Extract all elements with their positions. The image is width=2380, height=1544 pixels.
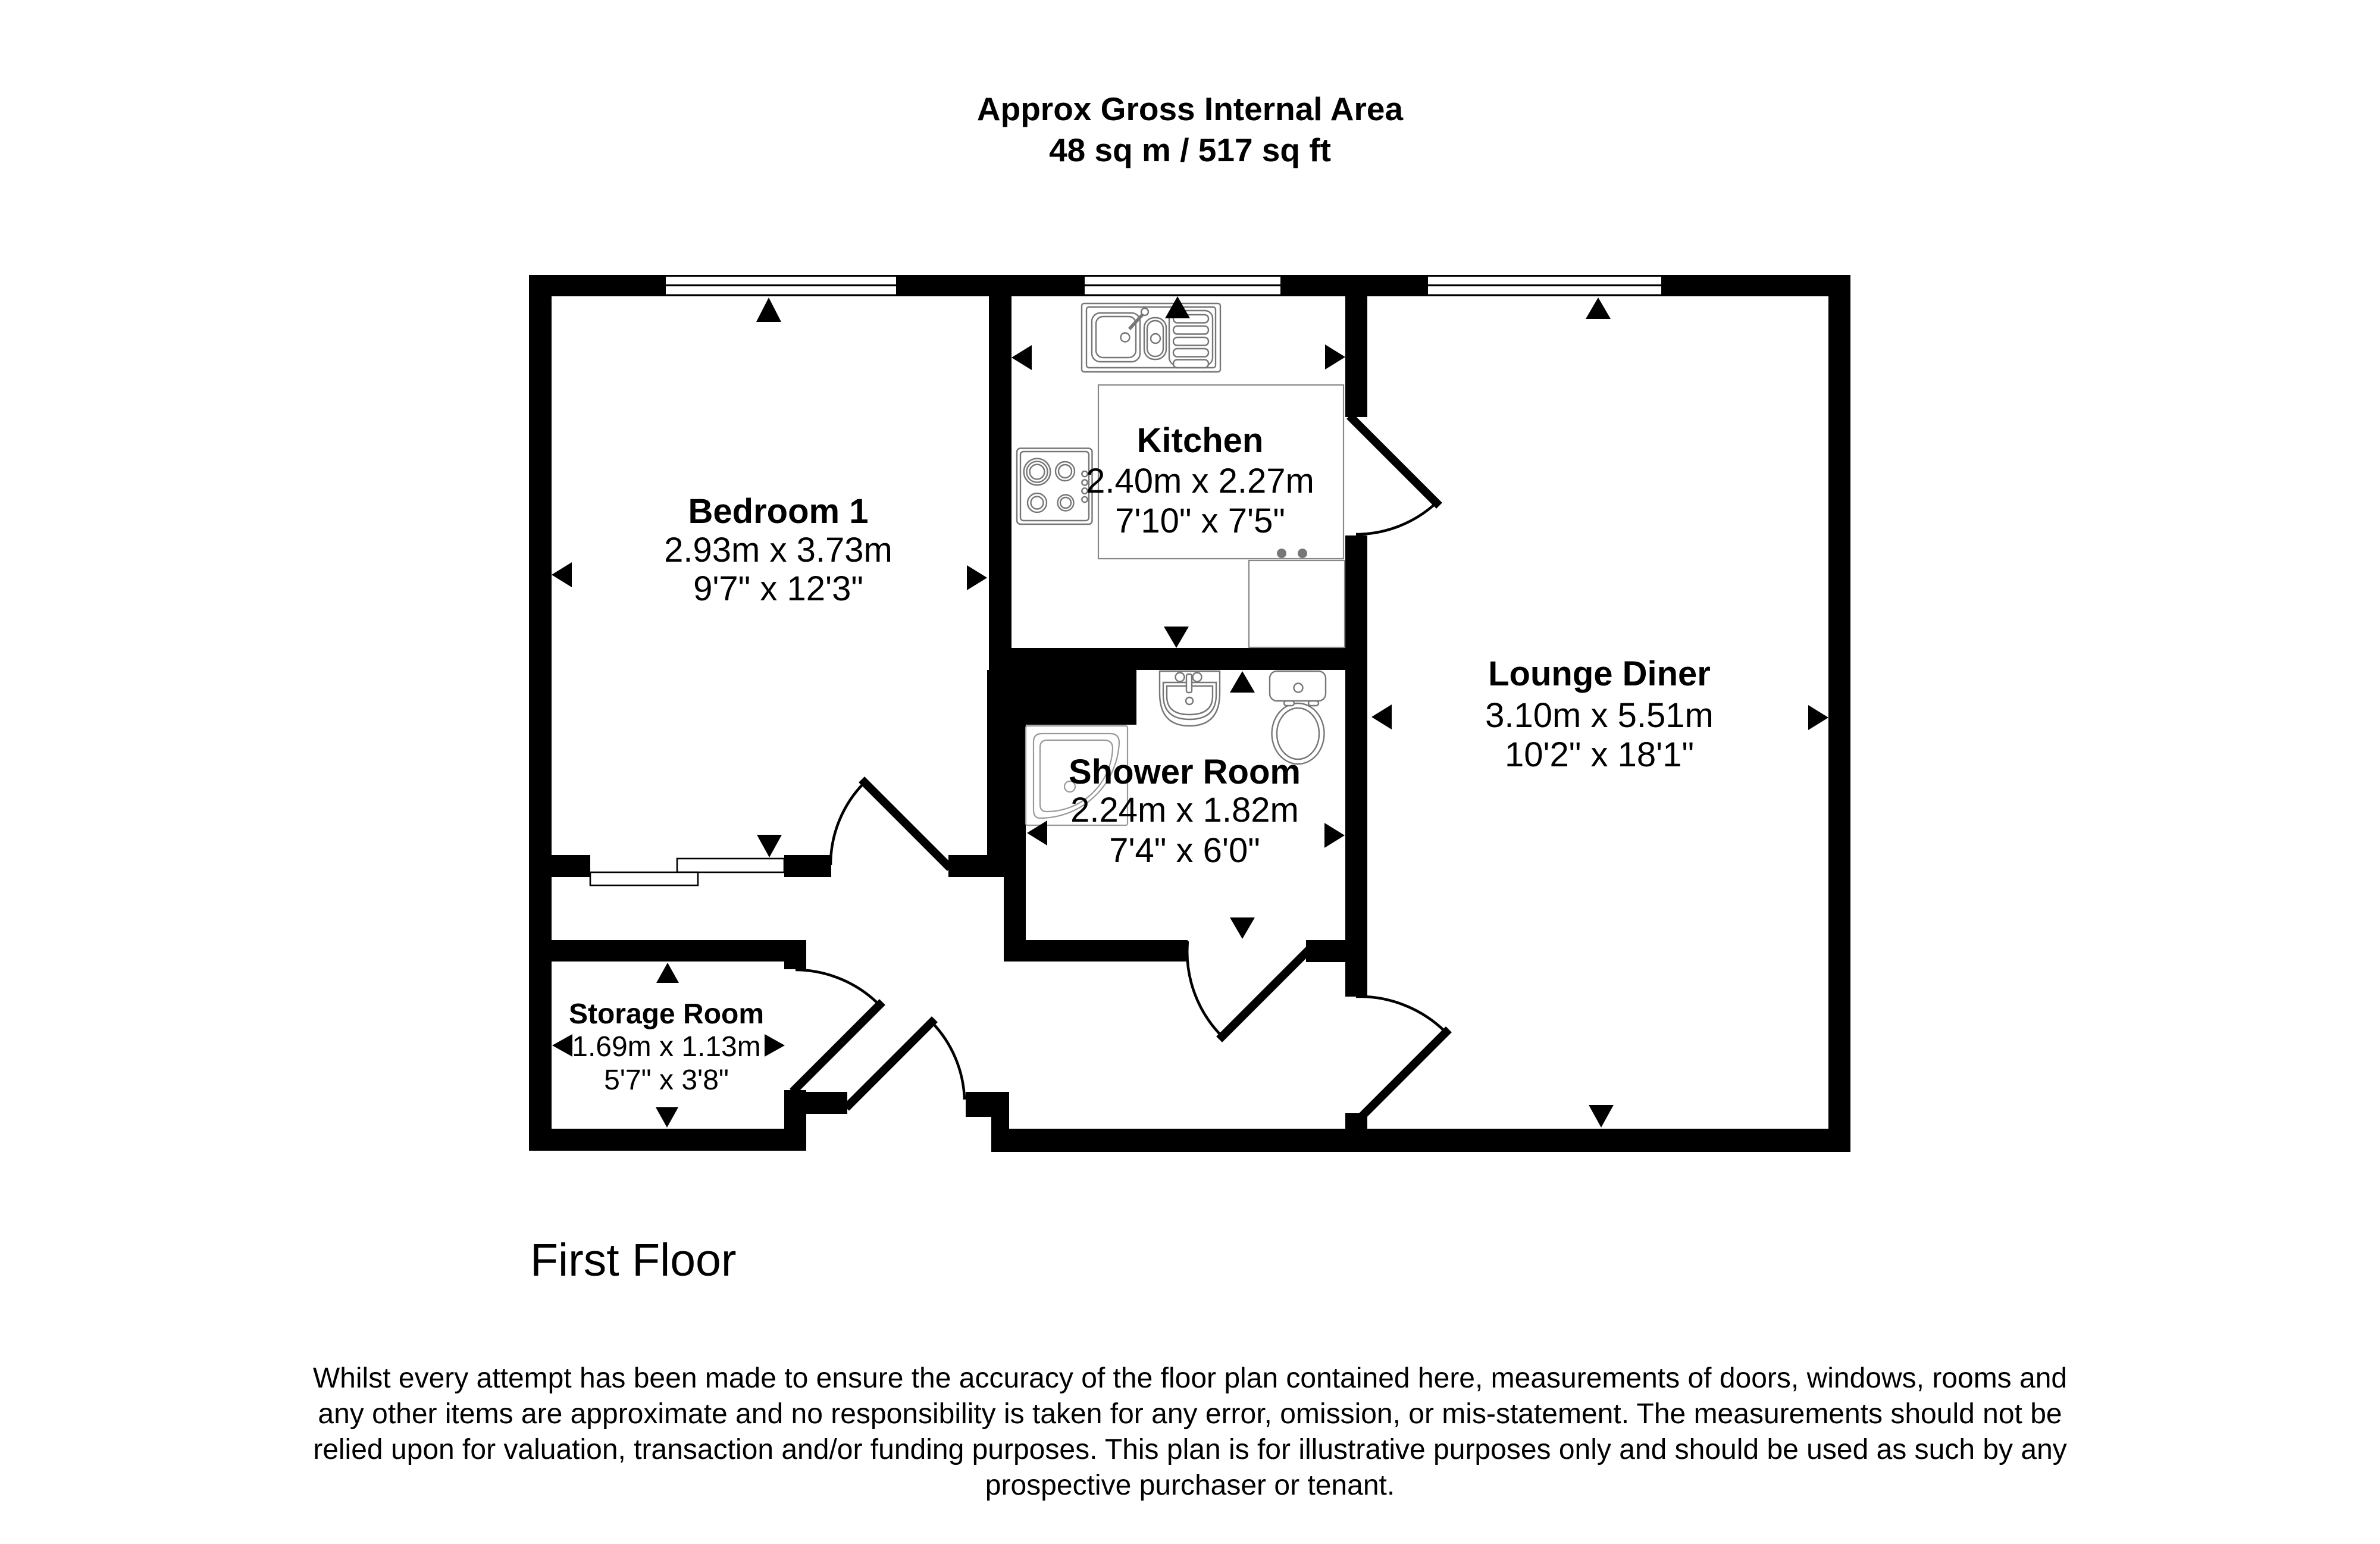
svg-text:7'10" x 7'5": 7'10" x 7'5" <box>1115 502 1285 540</box>
svg-text:2.24m x 1.82m: 2.24m x 1.82m <box>1070 791 1299 829</box>
svg-text:2.40m x 2.27m: 2.40m x 2.27m <box>1086 462 1314 500</box>
svg-text:Approx Gross Internal Area: Approx Gross Internal Area <box>977 90 1404 127</box>
svg-text:First Floor: First Floor <box>530 1235 737 1286</box>
svg-text:Shower Room: Shower Room <box>1069 753 1301 791</box>
svg-text:7'4" x 6'0": 7'4" x 6'0" <box>1109 831 1260 870</box>
svg-text:Lounge Diner: Lounge Diner <box>1488 654 1711 693</box>
svg-text:1.69m x 1.13m: 1.69m x 1.13m <box>572 1031 760 1063</box>
svg-text:any other items are approximat: any other items are approximate and no r… <box>318 1398 2062 1430</box>
svg-text:Storage Room: Storage Room <box>569 998 764 1030</box>
svg-text:relied upon for valuation, tra: relied upon for valuation, transaction a… <box>313 1434 2067 1465</box>
svg-text:48 sq m / 517 sq ft: 48 sq m / 517 sq ft <box>1049 131 1331 168</box>
svg-text:Bedroom 1: Bedroom 1 <box>688 492 869 531</box>
svg-text:5'7" x 3'8": 5'7" x 3'8" <box>604 1064 729 1096</box>
svg-text:Kitchen: Kitchen <box>1137 421 1264 460</box>
svg-text:Whilst every attempt has been: Whilst every attempt has been made to en… <box>313 1363 2067 1394</box>
svg-text:9'7" x 12'3": 9'7" x 12'3" <box>693 569 863 608</box>
svg-text:2.93m x 3.73m: 2.93m x 3.73m <box>664 531 892 569</box>
svg-text:3.10m x 5.51m: 3.10m x 5.51m <box>1485 696 1714 735</box>
svg-text:prospective purchaser or tenan: prospective purchaser or tenant. <box>985 1470 1395 1501</box>
svg-text:10'2" x 18'1": 10'2" x 18'1" <box>1505 735 1694 774</box>
